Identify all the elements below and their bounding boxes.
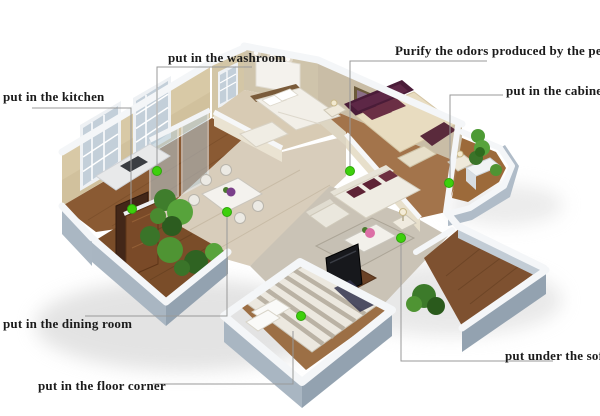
annotated-floorplan-image: put in the kitchenput in the washroomPur… [0,0,600,416]
floorplan-illustration [0,0,600,416]
